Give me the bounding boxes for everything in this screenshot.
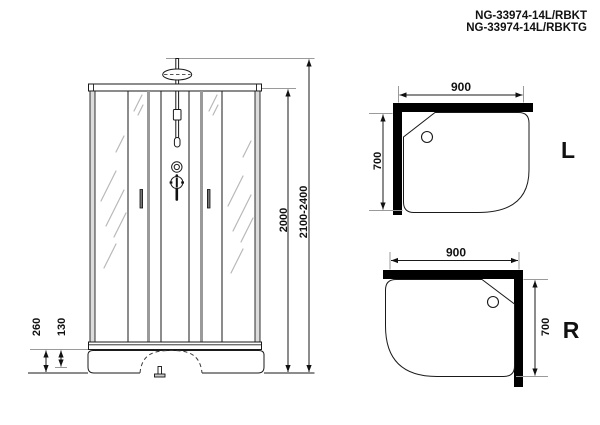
shine-mark — [106, 190, 124, 226]
frame-left — [90, 91, 95, 342]
dimension-label-260: 260 — [31, 318, 43, 336]
shine-mark — [231, 249, 243, 273]
tray-outline — [404, 113, 530, 213]
product-title: NG-33974-14L/RBKT NG-33974-14L/RBKTG — [466, 10, 587, 34]
wall-left — [393, 103, 402, 215]
shine-mark — [228, 176, 243, 206]
front-elevation: 260 130 2000 2100-2400 — [28, 59, 315, 378]
wall-right — [514, 270, 523, 387]
shower-head — [163, 59, 192, 85]
adjustable-foot-base — [155, 374, 166, 377]
tray-skirt — [88, 351, 264, 374]
dimension-label-700: 700 — [540, 318, 552, 336]
dimension-heights: 2000 2100-2400 — [262, 60, 310, 373]
shine-mark — [114, 213, 126, 237]
frame-right — [255, 91, 260, 342]
dimension-tray-height: 260 130 — [30, 318, 88, 372]
top-bar — [89, 84, 262, 91]
shower-column — [173, 91, 181, 147]
shine-mark — [138, 105, 143, 115]
variant-label-right: R — [563, 317, 580, 343]
glass-panels — [128, 91, 222, 342]
tray-rim — [89, 342, 262, 350]
variant-label-left: L — [561, 137, 575, 163]
hand-shower — [174, 138, 180, 148]
door-handles — [140, 190, 210, 209]
cabin-top-bar — [89, 84, 262, 91]
drain-hole — [488, 297, 499, 308]
dimension-label-2000: 2000 — [278, 208, 290, 232]
shine-mark — [104, 244, 116, 268]
adjustable-foot-stem — [158, 367, 162, 375]
left-door-handle — [140, 190, 143, 209]
drain-hole — [422, 132, 433, 143]
dimension-label-900: 900 — [446, 246, 466, 260]
shine-mark — [241, 218, 253, 242]
shine-mark — [233, 195, 251, 231]
dimension-label-2100-2400: 2100-2400 — [298, 186, 310, 239]
door-overlap-strip-left — [147, 91, 150, 342]
door-overlap-strip-right — [200, 91, 203, 342]
plan-view-left-version: 900 700 L — [369, 80, 575, 215]
wall-top — [393, 103, 533, 112]
shine-mark — [101, 171, 116, 201]
drawing-canvas: NG-33974-14L/RBKT NG-33974-14L/RBKTG — [0, 0, 600, 425]
shine-mark — [213, 105, 218, 115]
tray-outline — [386, 280, 515, 377]
product-code-line1: NG-33974-14L/RBKT — [475, 10, 587, 22]
shine-mark — [243, 141, 251, 157]
plan-view-right-version: 900 700 R — [383, 246, 580, 388]
wall-top — [383, 270, 523, 279]
dimension-label-130: 130 — [56, 318, 68, 336]
dimension-label-900: 900 — [451, 80, 471, 94]
product-code-line2: NG-33974-14L/RBKTG — [466, 22, 587, 34]
mixer-controls — [170, 162, 184, 200]
shower-tray — [88, 342, 264, 377]
shine-mark — [116, 136, 124, 152]
dimension-label-700: 700 — [372, 152, 384, 170]
riser-slider — [173, 110, 181, 121]
cabin-frame — [90, 91, 260, 342]
shower-cabin-technical-drawing: NG-33974-14L/RBKT NG-33974-14L/RBKTG — [0, 0, 600, 425]
mixer-ring-inner — [174, 164, 179, 169]
right-door-handle — [207, 190, 210, 209]
